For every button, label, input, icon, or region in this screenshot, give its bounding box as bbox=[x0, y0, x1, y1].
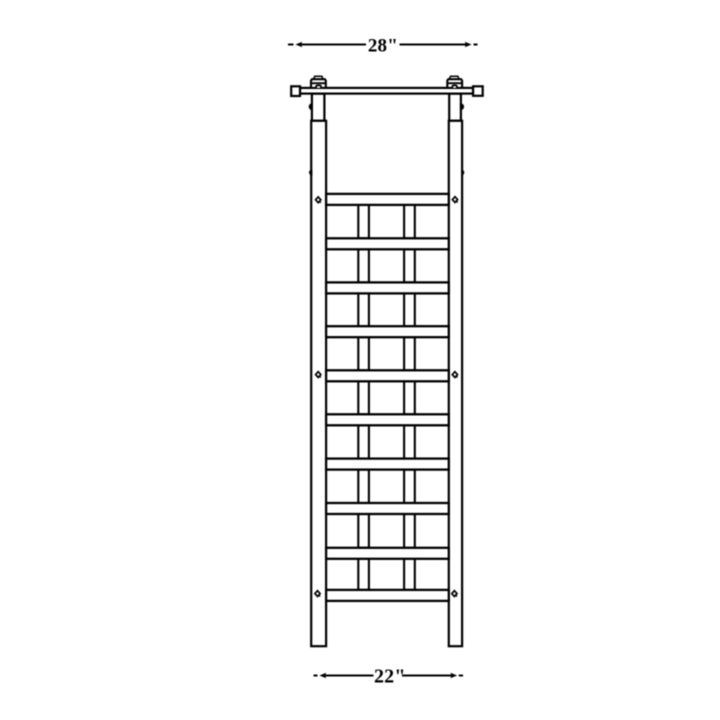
svg-text:28": 28" bbox=[368, 36, 398, 57]
svg-text:22": 22" bbox=[374, 665, 406, 687]
